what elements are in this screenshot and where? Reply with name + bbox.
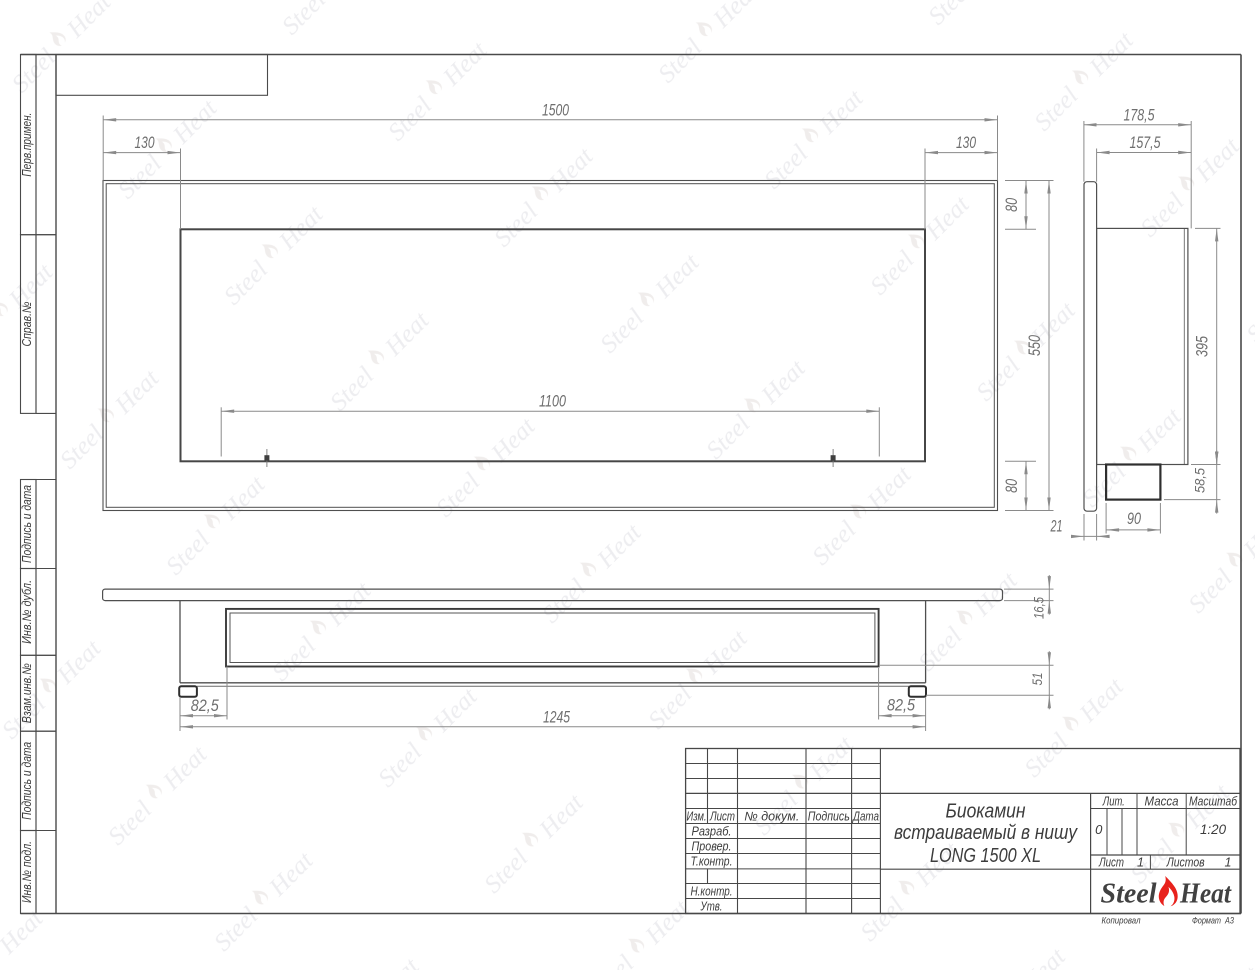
svg-text:Масса: Масса (1145, 795, 1179, 809)
svg-text:1: 1 (1137, 856, 1144, 870)
svg-text:Т.контр.: Т.контр. (691, 855, 733, 869)
svg-text:Провер.: Провер. (692, 840, 732, 854)
svg-text:Подпись и дата: Подпись и дата (20, 485, 34, 563)
svg-text:395: 395 (1194, 335, 1212, 357)
svg-text:Разраб.: Разраб. (692, 825, 732, 839)
svg-text:1:20: 1:20 (1200, 821, 1226, 837)
svg-text:80: 80 (1003, 478, 1021, 493)
svg-text:Лит.: Лит. (1102, 795, 1125, 809)
svg-text:130: 130 (135, 134, 156, 152)
svg-text:21: 21 (1050, 518, 1063, 536)
svg-text:Листов: Листов (1166, 856, 1205, 870)
svg-text:90: 90 (1127, 510, 1142, 528)
svg-text:0: 0 (1095, 822, 1103, 837)
svg-text:130: 130 (956, 134, 977, 152)
svg-text:1100: 1100 (539, 393, 567, 411)
svg-text:157,5: 157,5 (1130, 134, 1162, 152)
svg-text:Перв.примен.: Перв.примен. (20, 113, 34, 177)
svg-text:Подпись и дата: Подпись и дата (20, 742, 34, 820)
svg-text:Справ.№: Справ.№ (20, 301, 34, 346)
svg-text:Подпись: Подпись (808, 810, 850, 824)
svg-text:Лист: Лист (1098, 856, 1124, 870)
svg-text:Heat: Heat (1179, 879, 1232, 910)
svg-text:Н.контр.: Н.контр. (691, 885, 733, 899)
svg-text:Инв.№ дубл.: Инв.№ дубл. (20, 580, 34, 644)
svg-text:Изм.: Изм. (687, 810, 707, 824)
svg-text:Биокамин: Биокамин (946, 800, 1026, 823)
svg-text:Лист: Лист (709, 810, 735, 824)
svg-text:Инв.№ подл.: Инв.№ подл. (20, 841, 34, 903)
svg-text:82,5: 82,5 (191, 697, 220, 715)
svg-text:Копировал: Копировал (1102, 916, 1142, 927)
svg-text:встраиваемый в нишу: встраиваемый в нишу (894, 821, 1078, 844)
svg-text:1: 1 (1225, 856, 1232, 870)
svg-text:№ докум.: № докум. (744, 810, 799, 824)
svg-text:LONG 1500 XL: LONG 1500 XL (930, 844, 1041, 867)
svg-text:178,5: 178,5 (1124, 106, 1156, 124)
svg-text:16,5: 16,5 (1032, 597, 1047, 619)
svg-text:Взам.инв.№: Взам.инв.№ (20, 663, 34, 723)
svg-text:1245: 1245 (543, 708, 571, 726)
svg-text:550: 550 (1026, 334, 1044, 356)
svg-text:Steel: Steel (1101, 879, 1157, 910)
svg-text:51: 51 (1029, 673, 1045, 686)
svg-text:Формат А3: Формат А3 (1192, 916, 1235, 927)
svg-text:Масштаб: Масштаб (1189, 795, 1238, 809)
svg-text:1500: 1500 (542, 101, 570, 119)
svg-text:Утв.: Утв. (700, 900, 723, 914)
svg-text:80: 80 (1003, 197, 1021, 212)
svg-text:82,5: 82,5 (887, 697, 916, 715)
svg-text:58,5: 58,5 (1192, 468, 1208, 493)
svg-text:Дата: Дата (851, 810, 879, 824)
